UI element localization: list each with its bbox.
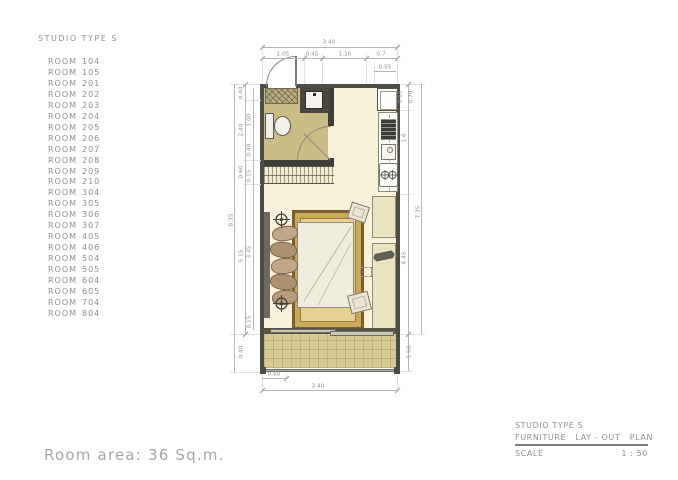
room-row-number: 206 [82,134,100,145]
room-list: STUDIO TYPE S ROOM 104 ROOM 105 ROOM 201… [38,34,118,320]
bed-sheet-fold-lines [298,223,353,307]
wardrobe [264,166,334,184]
dim-top-seg2: 0.45 [304,51,321,57]
bed-mattress [297,222,354,308]
room-row: ROOM 105 [48,68,118,79]
room-row-number: 306 [82,210,100,221]
extension-line [400,194,412,195]
room-row-number: 305 [82,199,100,210]
dim-left-in4: 3.45 [246,243,252,261]
dim-line-top-segments [262,58,397,59]
room-row-label: ROOM [48,145,82,156]
dim-right-seg3: 1.6 [401,130,407,147]
room-row: ROOM 209 [48,167,118,178]
room-row-number: 207 [82,145,100,156]
room-row: ROOM 304 [48,188,118,199]
room-row: ROOM 504 [48,254,118,265]
room-row-label: ROOM [48,199,82,210]
room-row-label: ROOM [48,123,82,134]
dim-line-bottom-door [262,378,286,379]
room-row-number: 204 [82,112,100,123]
dim-line-right-chain [408,84,409,371]
room-row-number: 505 [82,265,100,276]
scale-value: 1 : 50 [621,449,648,458]
extension-line [400,110,412,111]
scale-label: SCALE [515,449,544,458]
room-row-label: ROOM [48,90,82,101]
sink-faucet-icon [387,147,393,153]
room-row-label: ROOM [48,177,82,188]
fridge-inner-line [380,91,397,110]
room-row: ROOM 207 [48,145,118,156]
toilet-tank [265,113,274,139]
vanity-basin [305,91,323,109]
dim-left-in5: 0.15 [246,313,252,331]
ceiling-light-icon [273,295,290,312]
dim-left-in3: 0.15 [246,167,252,185]
room-row-number: 104 [82,57,100,68]
floor-plan-sheet: STUDIO TYPE S ROOM 104 ROOM 105 ROOM 201… [0,0,678,480]
room-row-label: ROOM [48,221,82,232]
fridge [377,88,398,111]
room-list-items: ROOM 104 ROOM 105 ROOM 201 ROOM 202 ROOM… [38,57,118,320]
title-block-drawing: FURNITURE LAY - OUT PLAN [515,433,648,442]
title-block-project: STUDIO TYPE S [515,421,648,430]
room-row: ROOM 406 [48,243,118,254]
balcony-floor [264,334,396,368]
room-area-text: Room area: 36 Sq.m. [44,446,225,464]
dim-top-seg4: 0.7 [373,51,388,57]
room-row: ROOM 505 [48,265,118,276]
dim-left-seg4: 5.15 [238,247,244,265]
cabinet-upper [372,196,396,238]
room-row-label: ROOM [48,156,82,167]
room-row-number: 604 [82,276,100,287]
dim-left-seg1: 0.40 [238,84,244,102]
extension-line [397,44,398,84]
room-row: ROOM 206 [48,134,118,145]
room-row-label: ROOM [48,265,82,276]
room-row-number: 203 [82,101,100,112]
shower-hatched-cabinet [265,88,298,104]
room-row: ROOM 604 [48,276,118,287]
dim-line-bottom-total [262,390,397,391]
extension-line [400,334,425,335]
room-row-label: ROOM [48,309,82,320]
room-row-label: ROOM [48,210,82,221]
room-row-number: 307 [82,221,100,232]
room-row-number: 202 [82,90,100,101]
room-row: ROOM 305 [48,199,118,210]
room-row: ROOM 605 [48,287,118,298]
title-block-rule [515,444,648,446]
room-row-number: 704 [82,298,100,309]
room-row: ROOM 203 [48,101,118,112]
dim-line-top-total [262,47,397,48]
stove-burners-icon [379,163,398,187]
room-row-number: 405 [82,232,100,243]
room-row-number: 208 [82,156,100,167]
room-row: ROOM 804 [48,309,118,320]
room-row: ROOM 205 [48,123,118,134]
dim-line-fridge [374,71,396,72]
room-row-number: 605 [82,287,100,298]
extension-line [230,372,260,373]
dim-left-seg2: 2.40 [238,121,244,139]
dim-right-seg1: 0.65 [397,89,403,106]
room-row: ROOM 201 [48,79,118,90]
title-block-scale-row: SCALE 1 : 50 [515,449,648,458]
room-list-title: STUDIO TYPE S [38,34,118,43]
room-row-label: ROOM [48,232,82,243]
room-row-number: 209 [82,167,100,178]
room-row-number: 210 [82,177,100,188]
room-row-number: 205 [82,123,100,134]
dim-top-total: 3.40 [319,39,339,45]
dim-left-in1: 1.00 [246,111,252,129]
dim-left-total: 8.35 [228,210,234,230]
ottoman-cushion-line [352,207,365,219]
extension-line [400,371,412,372]
dim-line-left-inner [253,88,254,330]
room-row-label: ROOM [48,57,82,68]
built-in-oven [381,119,396,140]
title-block: STUDIO TYPE S FURNITURE LAY - OUT PLAN S… [515,421,648,458]
room-row-number: 406 [82,243,100,254]
ottoman-cushion-line [352,296,367,310]
room-row: ROOM 210 [48,177,118,188]
sliding-door-leaf [270,329,336,334]
dim-right-seg2: 0.70 [408,89,414,106]
room-row-label: ROOM [48,298,82,309]
toilet-bowl [274,116,291,136]
dim-right-total: 7.35 [415,202,421,222]
room-row: ROOM 208 [48,156,118,167]
dim-line-right-outer [421,84,422,334]
dim-top-seg1: 1.05 [274,51,292,57]
ceiling-light-icon [273,211,290,228]
room-row-label: ROOM [48,188,82,199]
dim-left-seg3: 0.60 [238,163,244,181]
room-row: ROOM 405 [48,232,118,243]
dim-line-left-outer [234,84,235,372]
extension-line [374,66,375,84]
room-row: ROOM 204 [48,112,118,123]
dim-tick [395,388,401,394]
room-row-label: ROOM [48,167,82,178]
dim-right-seg4: 4.45 [401,250,407,267]
room-row-label: ROOM [48,68,82,79]
room-row: ROOM 307 [48,221,118,232]
room-row-label: ROOM [48,134,82,145]
dim-top-fridge: 0.55 [377,64,392,70]
room-row: ROOM 202 [48,90,118,101]
entry-door-swing-arc [266,56,296,86]
room-row-label: ROOM [48,254,82,265]
dim-top-seg3: 1.10 [336,51,354,57]
room-row-label: ROOM [48,101,82,112]
room-row: ROOM 104 [48,57,118,68]
kitchen-sink [381,144,396,160]
room-row: ROOM 306 [48,210,118,221]
room-row-number: 804 [82,309,100,320]
sliding-door-leaf [330,331,394,336]
room-row-label: ROOM [48,243,82,254]
headboard-panel [264,212,270,318]
room-row: ROOM 704 [48,298,118,309]
dim-bottom-door: 0.60 [266,371,283,377]
dashed-outline [360,267,372,277]
faucet-icon [313,93,316,96]
room-row-label: ROOM [48,79,82,90]
dim-right-balcony: 1.50 [406,343,412,361]
room-row-number: 504 [82,254,100,265]
dim-tick [284,376,290,382]
room-row-label: ROOM [48,112,82,123]
room-row-number: 304 [82,188,100,199]
room-row-label: ROOM [48,287,82,298]
room-row-number: 201 [82,79,100,90]
dim-left-in2: 0.40 [246,141,252,159]
room-row-label: ROOM [48,276,82,287]
wardrobe-divider [264,175,334,176]
room-row-number: 105 [82,68,100,79]
dim-left-seg5: 0.40 [238,343,244,361]
entry-door-leaf [295,56,297,86]
dim-bottom-total: 3.40 [309,383,327,389]
extension-line [262,44,263,84]
